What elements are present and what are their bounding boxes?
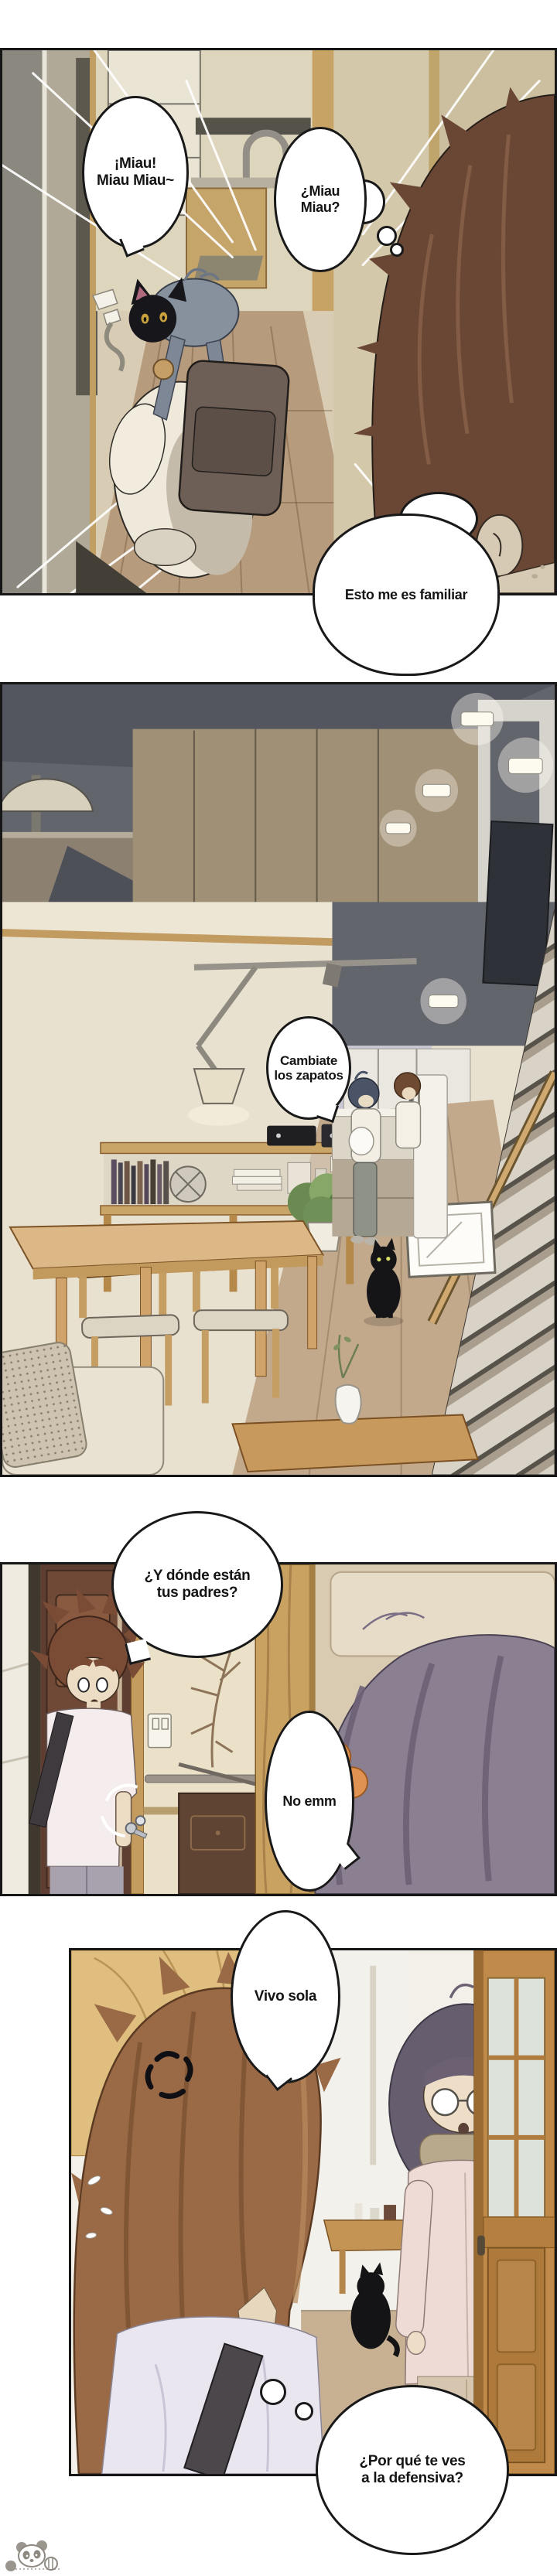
wooden-glass-door [474,1950,555,2474]
shoe [135,529,196,566]
bubble-text: Miau Miau~ [97,172,174,189]
bubble-text: ¡Miau! [114,155,156,172]
shoe-shelf [2,1564,41,1894]
open-mouth [458,2123,469,2135]
vase [336,1385,361,1424]
thought-chain-circle [390,243,404,257]
light-switch [148,1714,171,1747]
bubble-text: ¿Por qué te ves [360,2453,466,2470]
bubble-text: Esto me es familiar [345,587,467,603]
panda-mascot-icon [5,2538,65,2575]
thought-bubble-miau-question: ¿Miau Miau? [274,127,367,272]
shoulder-bag [178,360,289,516]
shocked-eye [97,1678,108,1692]
bubble-text: No emm [282,1793,336,1810]
bubble-text: los zapatos [274,1068,343,1083]
hand [407,2332,425,2355]
tv-screen [483,821,552,986]
hair-tie [153,360,173,380]
bubble-text: tus padres? [157,1585,237,1602]
shocked-eye [78,1678,89,1692]
comic-page: ¡Miau! Miau Miau~ ¿Miau Miau? Esto me es… [0,0,557,2576]
hallway-left-wall [2,50,97,593]
thought-chain-circle [260,2379,286,2405]
thought-chain-circle [295,2402,313,2421]
speech-bubble-miau: ¡Miau! Miau Miau~ [82,96,189,249]
girl-at-counter [348,1072,381,1244]
bubble-text: ¿Y dónde están [145,1568,251,1585]
boy-behind-counter [395,1073,421,1148]
bubble-text: ¿Miau [301,183,340,200]
shoe-cabinet [179,1793,258,1894]
door-handle [477,2236,485,2256]
bubble-text: a la defensiva? [361,2470,463,2487]
bubble-text: Vivo sola [255,1988,316,2005]
speech-bubble-vivo-sola: Vivo sola [231,1910,340,2083]
speech-bubble-padres: ¿Y dónde están tus padres? [111,1511,283,1658]
speech-bubble-familiar: Esto me es familiar [313,513,500,676]
bubble-text: Cambiate [280,1053,337,1068]
speech-bubble-zapatos: Cambiate los zapatos [266,1016,351,1120]
bubble-text: Miau? [301,200,340,216]
thought-bubble-defensiva: ¿Por qué te ves a la defensiva? [316,2385,509,2555]
fridge [409,1075,448,1238]
